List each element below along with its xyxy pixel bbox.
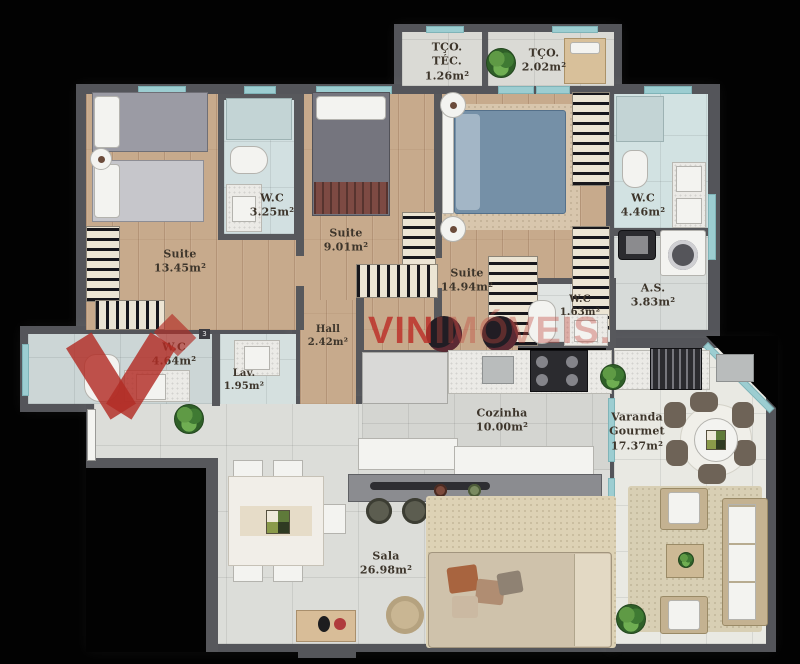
room-label-cozinha: Cozinha 10.00m²	[476, 407, 528, 436]
room-label-hall: Hall 2.42m²	[308, 323, 349, 349]
exterior-ac-unit	[298, 644, 356, 658]
room-name: Suite	[324, 227, 368, 241]
room-name: W.C	[250, 192, 294, 206]
wall-wc464-lav	[212, 334, 220, 406]
room-name: Lav.	[224, 367, 265, 380]
room-name: A.S.	[631, 282, 675, 296]
side-table-round	[386, 596, 424, 634]
room-area: 17.37m²	[601, 439, 673, 453]
wall-hall-right	[356, 296, 364, 352]
stove-burner-2	[566, 356, 578, 368]
window-as-right	[708, 194, 716, 260]
corridor-plant	[174, 404, 204, 434]
bar-stool-1	[366, 498, 392, 524]
wc446-shower	[616, 96, 664, 142]
dining-centerpiece	[266, 510, 290, 534]
room-label-tco-tec: TÇO. TÉC. 1.26m²	[423, 41, 471, 84]
console-vase-dark	[318, 616, 330, 632]
room-area: 9.01m²	[324, 241, 368, 255]
wc446-sink-2	[676, 198, 702, 224]
varanda-sofa-cushions	[728, 504, 756, 620]
sofa-back-cushions	[574, 554, 610, 646]
varanda-chair-ne	[732, 402, 754, 428]
as-laundry-basin	[626, 236, 648, 254]
wall-suite1-suite2-a	[296, 94, 304, 256]
suite3-lamp-top	[450, 102, 457, 109]
tco-lounger-pillow	[570, 42, 600, 54]
sofa-pillow-gray	[496, 570, 523, 596]
room-name: Cozinha	[476, 407, 528, 421]
varanda-centerpiece	[706, 430, 726, 450]
kitchen-cabinet-column	[362, 352, 448, 404]
suite1-closet-vertical	[86, 226, 120, 302]
floor-plan: 3	[0, 0, 800, 664]
varanda-armchair-2-cushion	[668, 600, 700, 630]
room-label-suite-3: Suite 14.94m²	[441, 267, 493, 296]
varanda-plant-top	[600, 364, 626, 390]
room-name: Hall	[308, 323, 349, 336]
stove-burner-1	[536, 356, 548, 368]
suite3-pillows	[456, 114, 480, 210]
room-area: 1.26m²	[423, 69, 471, 83]
varanda-chair-s	[698, 464, 726, 484]
room-area: 3.25m²	[250, 206, 294, 220]
varanda-armchair-1-cushion	[668, 492, 700, 524]
wall-sala-left-lower	[206, 458, 218, 652]
varanda-table-plant	[678, 552, 694, 568]
room-area: 26.98m²	[360, 564, 412, 578]
entry-door	[88, 410, 95, 460]
room-area: 3.83m²	[631, 296, 675, 310]
suite3-headboard	[442, 110, 454, 214]
suite3-closet-right-top	[572, 92, 610, 186]
room-label-sala: Sala 26.98m²	[360, 550, 412, 579]
tco-plant	[486, 48, 516, 78]
room-area: 13.45m²	[154, 262, 206, 276]
kitchen-sink	[482, 356, 514, 384]
room-area: 4.46m²	[621, 206, 665, 220]
suite1-closet-horizontal	[95, 300, 165, 330]
stove-burner-3	[536, 374, 548, 386]
watermark-brand-strong: VIN	[368, 310, 434, 352]
floor-hall	[300, 300, 356, 404]
room-label-tco: TÇO. 2.02m²	[522, 47, 566, 76]
room-name: Suite	[154, 248, 206, 262]
room-area: 10.00m²	[476, 421, 528, 435]
console-vase-red	[334, 618, 346, 630]
bar-stool-2	[402, 498, 428, 524]
varanda-plant-bottom	[616, 604, 646, 634]
wall-marker-text: 3	[202, 330, 206, 338]
suite2-closet-horizontal	[356, 264, 438, 298]
wc446-toilet	[622, 150, 648, 188]
suite2-bed-pillow	[316, 96, 386, 120]
suite2-bed-blanket	[314, 182, 388, 214]
wc325-shower	[226, 98, 292, 140]
room-name: TÇO.	[522, 47, 566, 61]
room-label-suite-1: Suite 13.45m²	[154, 248, 206, 277]
room-label-lav: Lav. 1.95m²	[224, 367, 265, 393]
wall-marker: 3	[199, 329, 210, 339]
suite1-lamp	[98, 156, 105, 163]
wall-suite1-suite2-b	[296, 286, 304, 330]
window-wc464-left	[22, 344, 29, 396]
varanda-grill	[650, 348, 702, 390]
window-wc325	[244, 86, 276, 94]
watermark-brand-faint: IMÓVEIS.	[434, 310, 611, 352]
room-name: TÇO. TÉC.	[423, 41, 471, 70]
sofa-pillow-beige	[452, 596, 478, 618]
room-label-wc-446: W.C 4.46m²	[621, 192, 665, 221]
room-label-suite-2: Suite 9.01m²	[324, 227, 368, 256]
suite2-closet-vertical	[402, 212, 436, 270]
room-name: W.C	[560, 293, 601, 306]
wc446-sink-1	[676, 166, 702, 192]
room-name: W.C	[621, 192, 665, 206]
window-tco	[552, 26, 598, 33]
window-suite3-a	[498, 86, 534, 94]
room-name: Sala	[360, 550, 412, 564]
wall-corridor-bottom	[86, 458, 218, 468]
as-washer-door	[668, 240, 698, 270]
room-label-as: A.S. 3.83m²	[631, 282, 675, 311]
room-area: 2.42m²	[308, 336, 349, 349]
suite1-bed2-pillow	[94, 164, 120, 218]
watermark-brand: VINIMÓVEIS.	[368, 312, 611, 350]
window-tco-tec	[426, 26, 464, 33]
varanda-chair-n	[690, 392, 718, 412]
varanda-sink	[716, 354, 754, 382]
stove-burner-4	[566, 374, 578, 386]
window-wc446	[644, 86, 692, 94]
exterior-notch	[86, 468, 208, 652]
room-label-varanda-gourmet: Varanda Gourmet 17.37m²	[601, 411, 673, 454]
room-area: 14.94m²	[441, 281, 493, 295]
room-area: 2.02m²	[522, 61, 566, 75]
room-label-wc-325: W.C 3.25m²	[250, 192, 294, 221]
suite1-bed1-pillow	[94, 96, 120, 148]
window-suite3-b	[536, 86, 570, 94]
room-name: Varanda Gourmet	[601, 411, 673, 440]
suite3-lamp-bottom	[450, 226, 457, 233]
room-area: 1.95m²	[224, 380, 265, 393]
room-name: Suite	[441, 267, 493, 281]
sofa-pillow-rust	[446, 564, 479, 594]
wc325-toilet	[230, 146, 268, 174]
kitchen-fridge	[358, 438, 458, 470]
